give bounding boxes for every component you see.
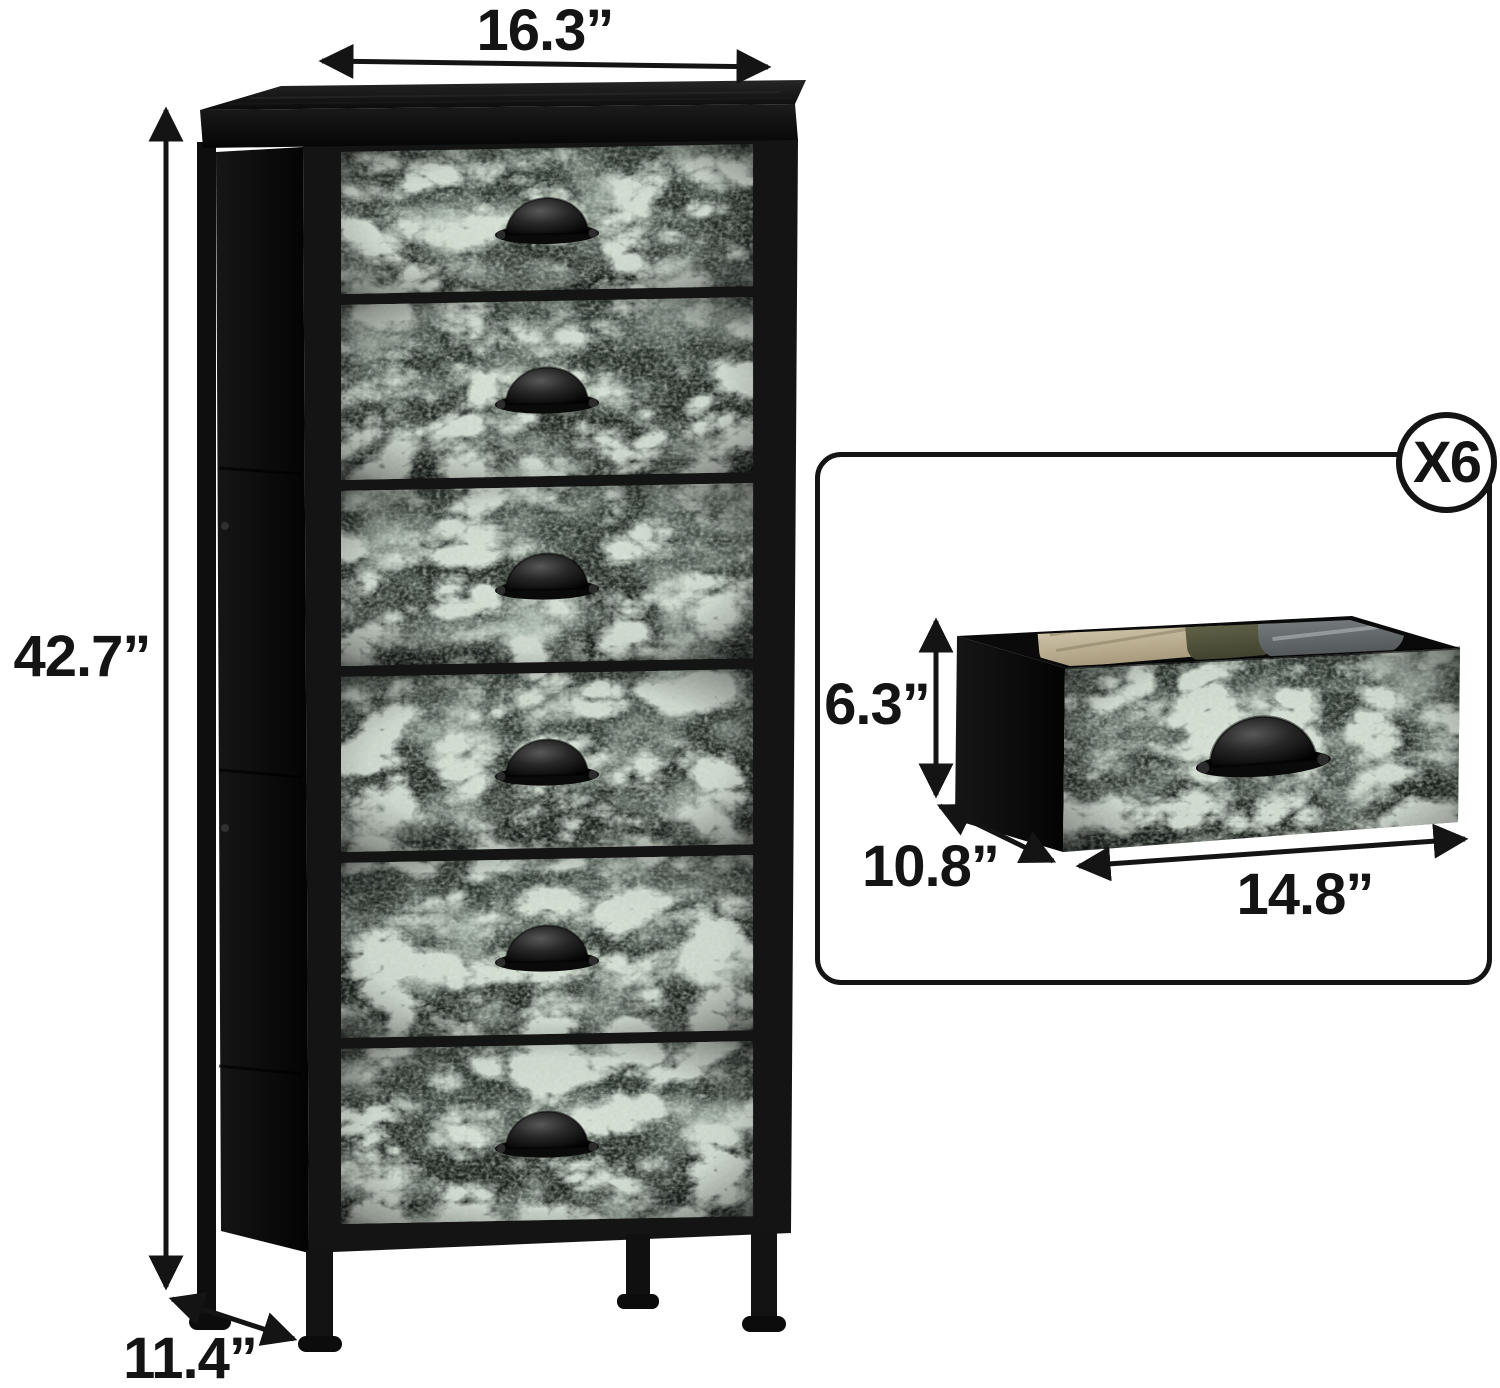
drawer-front-3 (341, 483, 753, 666)
inset-depth-label: 10.8” (828, 838, 1033, 896)
depth-dimension-label: 11.4” (70, 1330, 310, 1388)
drawer-front-2 (341, 297, 753, 480)
drawer-front-5 (341, 855, 753, 1038)
illustration-layer (0, 0, 1500, 1388)
product-dimension-diagram: 16.3” 42.7” 11.4” 6.3” 10.8” 14.8” X6 (0, 0, 1500, 1388)
back-left-post (197, 142, 216, 1314)
height-dimension-label: 42.7” (0, 628, 164, 686)
drawer-front-4 (341, 669, 753, 852)
foot (617, 1294, 659, 1309)
inset-height-label: 6.3” (792, 676, 962, 734)
drawer-front-6 (341, 1041, 753, 1224)
side-panel (216, 147, 309, 1253)
drawer-front-1 (341, 144, 753, 294)
drawer-count-badge: X6 (1396, 412, 1497, 513)
dresser-illustration (189, 80, 806, 1352)
foot (742, 1316, 786, 1332)
inset-width-label: 14.8” (1180, 866, 1430, 924)
inset-drawer-illustration (955, 585, 1460, 852)
top-board (200, 80, 806, 148)
width-dimension-label: 16.3” (355, 2, 735, 60)
side-screw (221, 824, 229, 832)
side-screw (221, 522, 229, 530)
drawer-stack (341, 144, 753, 1224)
